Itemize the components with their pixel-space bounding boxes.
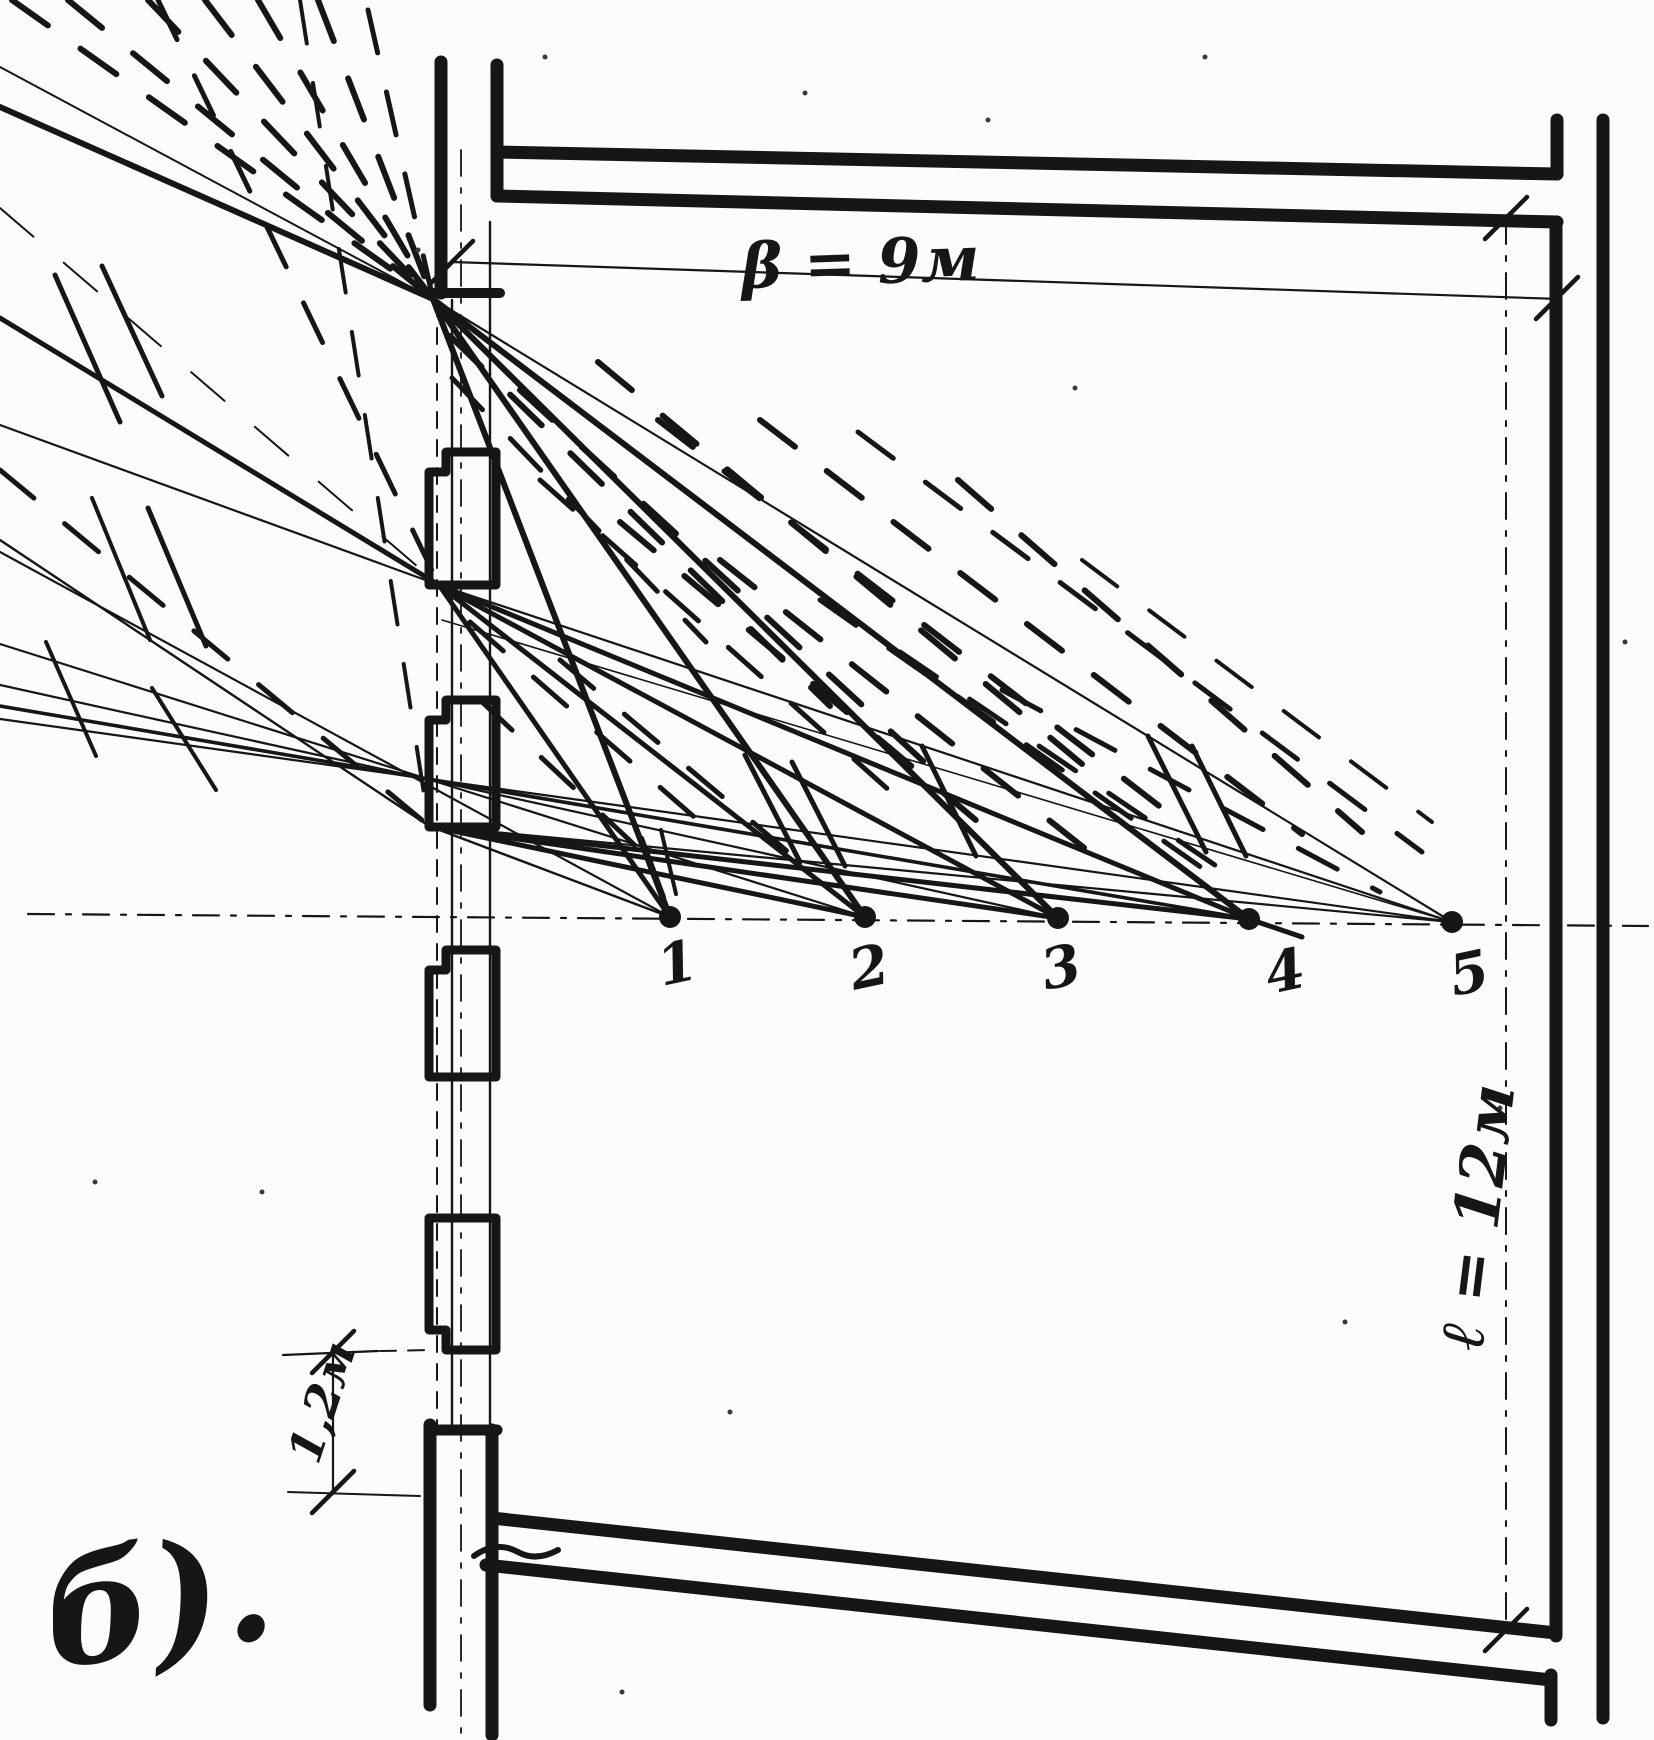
point-label-1: 1 <box>651 927 703 1000</box>
dimension-depth: ℓ = 12м <box>1424 1080 1529 1354</box>
point-labels: 1 2 3 4 5 <box>651 927 1495 1010</box>
measurement-points <box>659 906 1463 933</box>
light-rays <box>0 0 1452 937</box>
depth-dimension-label: ℓ = 12м <box>1424 1080 1529 1354</box>
floor-plan-sketch: β = 9м ℓ = 12м 1,2м 1 2 3 4 5 б). <box>0 0 1654 1740</box>
beta-dimension-label: β = 9м <box>738 222 981 303</box>
dimension-beta: β = 9м <box>738 222 981 303</box>
walls <box>429 62 1603 1735</box>
point-label-4: 4 <box>1259 935 1311 1008</box>
technical-drawing-page: β = 9м ℓ = 12м 1,2м 1 2 3 4 5 б). <box>0 0 1654 1740</box>
figure-label: б). <box>33 1499 283 1703</box>
center-axis <box>28 150 1648 1740</box>
point-label-3: 3 <box>1035 931 1087 1004</box>
point-label-5: 5 <box>1443 937 1495 1010</box>
point-label-2: 2 <box>842 931 895 1004</box>
